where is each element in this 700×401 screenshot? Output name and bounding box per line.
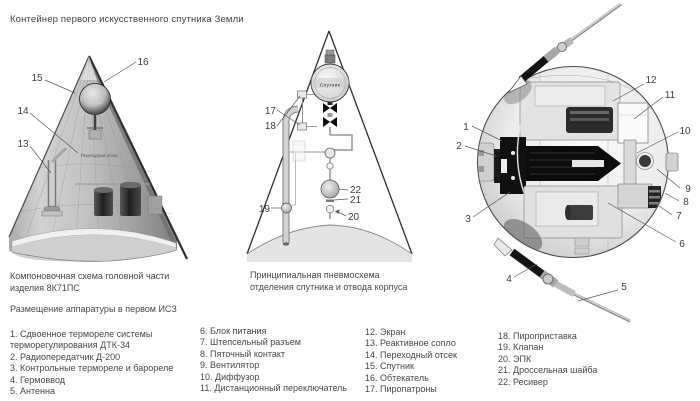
caption-left: Компоновочная схема головной части издел… bbox=[10, 271, 169, 294]
caption-middle-line2: отделения спутника и отвода корпуса bbox=[250, 282, 407, 294]
legend-line: 3. Контрольные термореле и барореле bbox=[10, 363, 173, 374]
legend-line: 20. ЭПК bbox=[498, 354, 597, 365]
callout-3: 3 bbox=[465, 214, 471, 225]
callout-13: 13 bbox=[17, 139, 29, 150]
legend-line: 5. Антенна bbox=[10, 386, 173, 397]
caption-middle: Принципиальная пневмосхема отделения спу… bbox=[250, 270, 407, 293]
throttle-washer bbox=[326, 200, 334, 203]
pyro-valve-lower bbox=[323, 117, 337, 127]
legend-line: терморегулирования ДТК-34 bbox=[10, 340, 173, 351]
callout-6: 6 bbox=[679, 239, 685, 250]
caption-left-line1: Компоновочная схема головной части bbox=[10, 271, 169, 283]
tank-dome-fill bbox=[247, 225, 412, 262]
receiver-sphere bbox=[321, 180, 339, 198]
legend-line: 2. Радиопередатчик Д-200 bbox=[10, 352, 173, 363]
caption-left-line2: изделия 8К71ПС bbox=[10, 283, 169, 295]
satellite-ball-label: Спутник bbox=[88, 101, 102, 105]
pneumatic-scheme-figure: Спутник 17 18 19 22 21 20 bbox=[247, 31, 412, 262]
callout-9: 9 bbox=[685, 184, 691, 195]
legend-line: 12. Экран bbox=[365, 327, 457, 338]
fairing-cutaway-figure: Спутник Переходный отсек bbox=[9, 56, 187, 262]
callout-17: 17 bbox=[265, 106, 277, 117]
support-box bbox=[89, 130, 101, 139]
callout-8: 8 bbox=[683, 197, 689, 208]
bypass-loop bbox=[330, 135, 352, 150]
callout-16: 16 bbox=[137, 57, 149, 68]
callout-20: 20 bbox=[348, 212, 360, 223]
valve-ball-19 bbox=[282, 203, 292, 213]
satellite-cutaway-figure: 1 2 3 4 5 6 7 8 9 10 11 12 bbox=[443, 3, 691, 321]
legend-line: 16. Обтекатель bbox=[365, 373, 457, 384]
legend-line: 18. Пироприставка bbox=[498, 331, 597, 342]
sputnik-sphere-label: Спутник bbox=[320, 83, 341, 88]
heel-contact bbox=[639, 155, 651, 167]
callout-14: 14 bbox=[17, 106, 29, 117]
satellite-ball bbox=[80, 84, 111, 115]
arrowhead-20 bbox=[335, 210, 340, 215]
callout-7: 7 bbox=[676, 211, 682, 222]
legend-line: 9. Вентилятор bbox=[200, 360, 347, 371]
callout-18: 18 bbox=[265, 121, 277, 132]
callout-1: 1 bbox=[463, 122, 469, 133]
transition-section-label: Переходный отсек bbox=[81, 153, 118, 158]
caption-middle-line1: Принципиальная пневмосхема bbox=[250, 270, 407, 282]
legend-column-1: 1. Сдвоенное термореле системы терморегу… bbox=[10, 329, 173, 397]
legend-line: 1. Сдвоенное термореле системы bbox=[10, 329, 173, 340]
callout-21: 21 bbox=[350, 195, 362, 206]
legend-header: Размещение аппаратуры в первом ИСЗ bbox=[10, 304, 177, 316]
antenna-pyro-sleeve-lower bbox=[512, 252, 542, 274]
legend-line: 11. Дистанционный переключатель bbox=[200, 383, 347, 394]
callout-12: 12 bbox=[645, 75, 657, 86]
epk-valve bbox=[326, 205, 334, 213]
legend-line: 17. Пиропатроны bbox=[365, 384, 457, 395]
callout-5: 5 bbox=[621, 282, 627, 293]
legend-column-3: 12. Экран 13. Реактивное сопло 14. Перех… bbox=[365, 327, 457, 395]
legend-line: 8. Пяточный контакт bbox=[200, 349, 347, 360]
legend-line: 13. Реактивное сопло bbox=[365, 338, 457, 349]
side-fitting bbox=[666, 153, 678, 171]
legend-line: 10. Диффузор bbox=[200, 372, 347, 383]
callout-2: 2 bbox=[456, 141, 462, 152]
legend-line: 22. Ресивер bbox=[498, 377, 597, 388]
cone-outline-right bbox=[329, 31, 412, 254]
legend-line: 14. Переходный отсек bbox=[365, 350, 457, 361]
legend-column-4: 18. Пироприставка 19. Клапан 20. ЭПК 21.… bbox=[498, 331, 597, 388]
scanned-diagram-page: Контейнер первого искусственного спутник… bbox=[0, 0, 700, 401]
callout-4: 4 bbox=[506, 274, 512, 285]
legend-line: 21. Дроссельная шайба bbox=[498, 365, 597, 376]
legend-line: 4. Гермоввод bbox=[10, 375, 173, 386]
callout-11: 11 bbox=[665, 90, 676, 101]
legend-line: 15. Спутник bbox=[365, 361, 457, 372]
legend-column-2: 6. Блок питания 7. Штепсельный разъем 8.… bbox=[200, 326, 347, 394]
callout-19: 19 bbox=[259, 204, 271, 215]
callout-15: 15 bbox=[31, 73, 43, 84]
callout-10: 10 bbox=[679, 126, 691, 137]
legend-line: 19. Клапан bbox=[498, 342, 597, 353]
legend-line: 6. Блок питания bbox=[200, 326, 347, 337]
power-unit-box bbox=[618, 103, 648, 143]
legend-line: 7. Штепсельный разъем bbox=[200, 337, 347, 348]
